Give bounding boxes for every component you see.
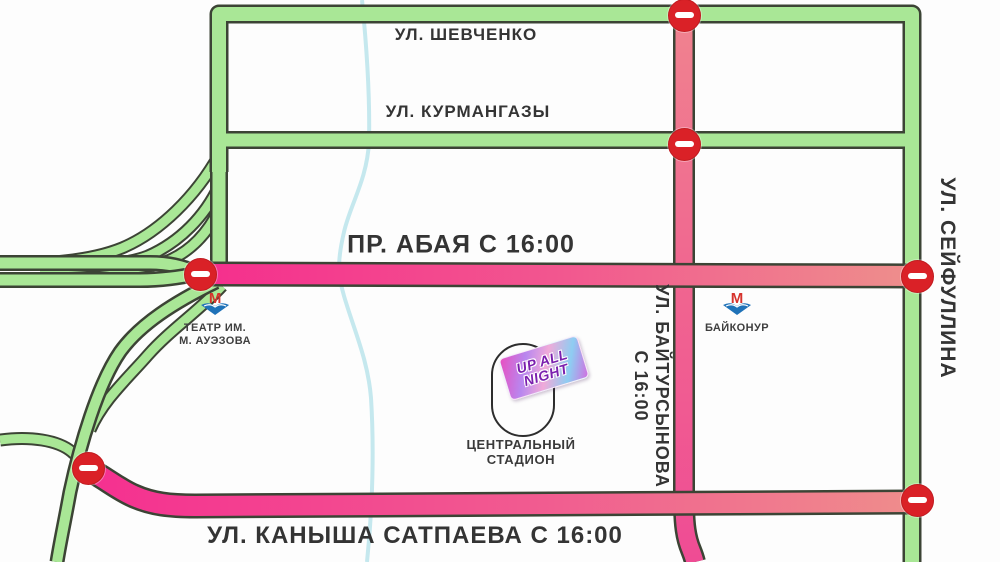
street-label-abay: ПР. АБАЯ С 16:00 [347, 231, 575, 260]
street-label-baitursynova: УЛ. БАЙТУРСЫНОВА С 16:00 [630, 284, 672, 488]
no-entry-sign-kurmangazy [668, 128, 701, 161]
metro-station-baikonur: М БАЙКОНУР [705, 290, 769, 335]
abay-road-fill [207, 274, 915, 276]
street-label-seifullina: УЛ. СЕЙФУЛЛИНА [935, 177, 959, 378]
street-closure-map: УЛ. ШЕВЧЕНКО УЛ. КУРМАНГАЗЫ ПР. АБАЯ С 1… [0, 0, 1000, 562]
no-entry-bar-icon [675, 141, 694, 147]
no-entry-sign-abay-east [901, 260, 934, 293]
no-entry-sign-abay-west [184, 258, 217, 291]
station-label-line2: М. АУЭЗОВА [179, 335, 251, 348]
metro-icon: М [722, 290, 752, 316]
no-entry-sign-satpayev-east [901, 484, 934, 517]
stadium-label: ЦЕНТРАЛЬНЫЙ СТАДИОН [466, 437, 575, 467]
street-label-baitursynova-time: С 16:00 [630, 284, 651, 488]
street-label-shevchenko: УЛ. ШЕВЧЕНКО [395, 25, 538, 45]
station-label-line1: БАЙКОНУР [705, 322, 769, 335]
no-entry-bar-icon [79, 465, 98, 471]
street-label-kurmangazy: УЛ. КУРМАНГАЗЫ [386, 102, 551, 122]
station-label-line1: ТЕАТР ИМ. [179, 322, 251, 335]
metro-icon: М [200, 290, 230, 316]
no-entry-bar-icon [908, 273, 927, 279]
no-entry-bar-icon [191, 271, 210, 277]
street-label-satpayeva: УЛ. КАНЫША САТПАЕВА С 16:00 [207, 522, 623, 550]
no-entry-bar-icon [675, 12, 694, 18]
stadium-label-line1: ЦЕНТРАЛЬНЫЙ [466, 437, 575, 452]
satpayev-road-fill [90, 470, 915, 506]
no-entry-sign-shevchenko [668, 0, 701, 32]
highway-lane-fill [0, 274, 197, 280]
street-label-baitursynova-name: УЛ. БАЙТУРСЫНОВА [651, 284, 672, 488]
stadium-label-line2: СТАДИОН [466, 452, 575, 467]
road-map-canvas [0, 0, 1000, 562]
metro-station-auezov-theater: М ТЕАТР ИМ. М. АУЭЗОВА [179, 290, 251, 348]
no-entry-sign-satpayev-west [72, 452, 105, 485]
no-entry-bar-icon [908, 497, 927, 503]
